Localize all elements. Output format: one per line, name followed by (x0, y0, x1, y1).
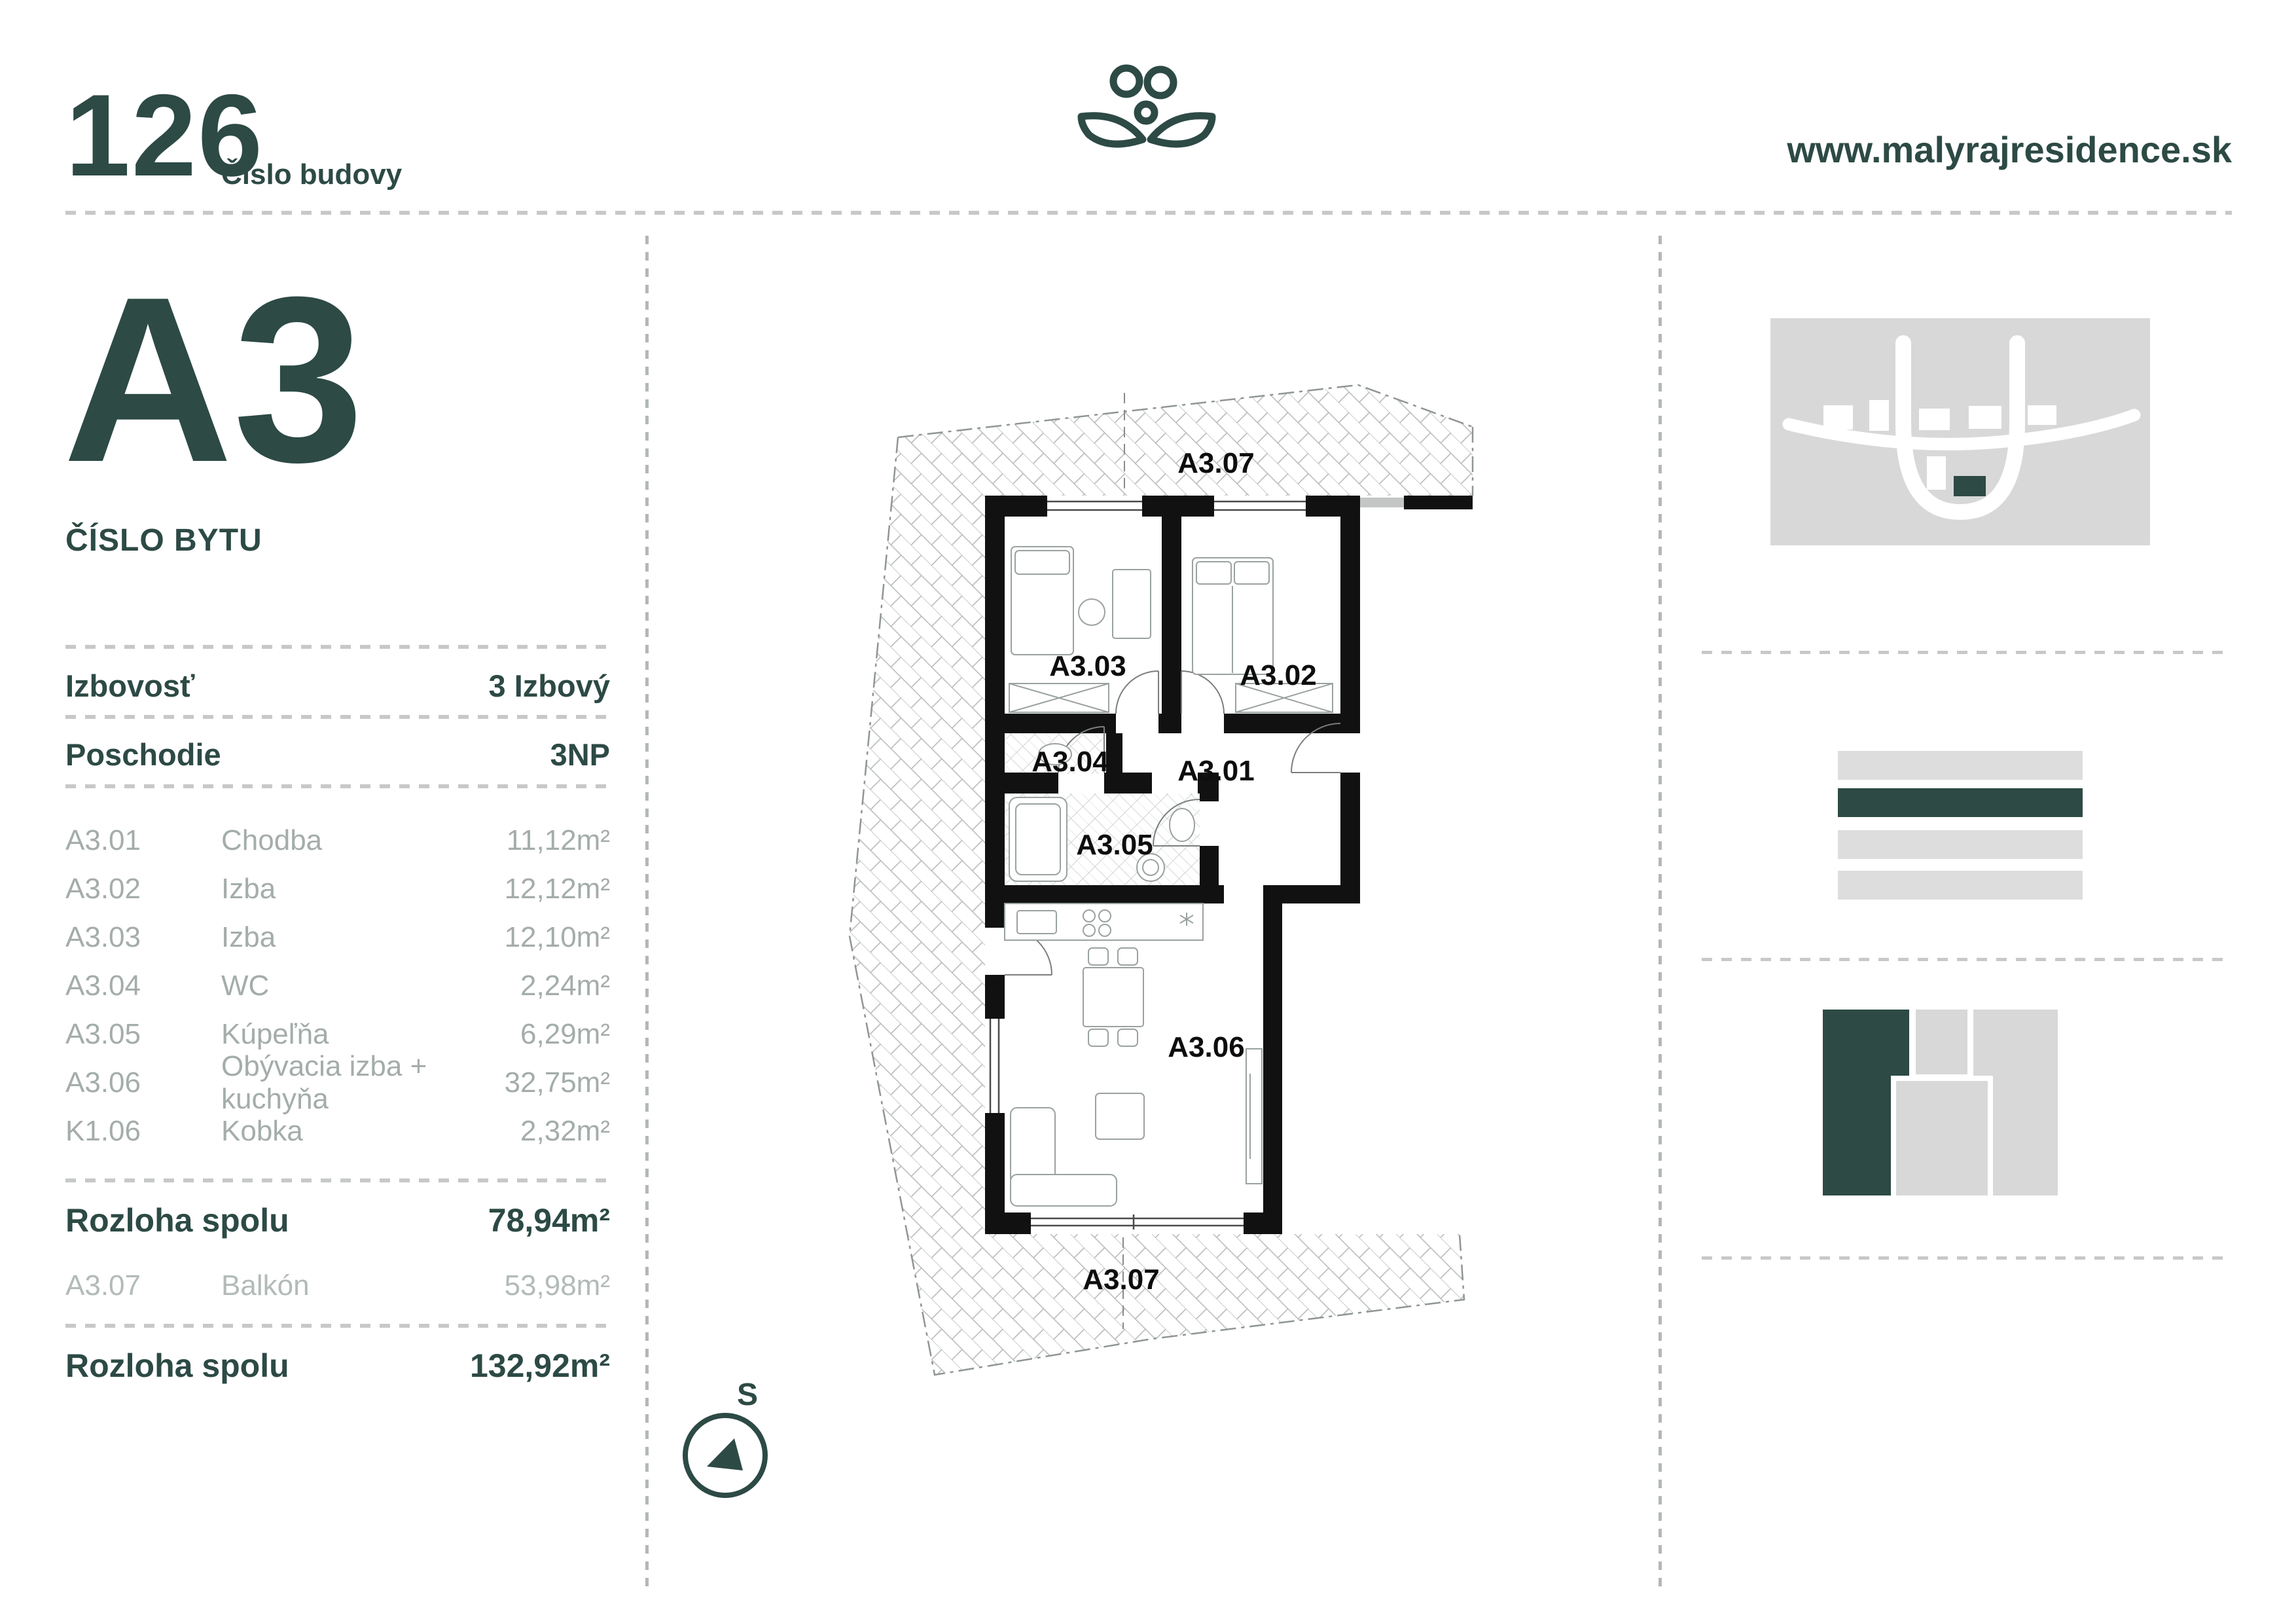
section-block (1896, 1081, 1988, 1195)
compass-arrow-icon (707, 1438, 743, 1470)
room-name: Izba (221, 873, 276, 905)
room-name: Balkón (221, 1269, 310, 1302)
divider (1702, 958, 2232, 961)
room-name: WC (221, 970, 269, 1002)
summary-value: 3 Izbový (489, 668, 610, 704)
floor-bar-3np-active (1838, 788, 2083, 817)
room-code: A3.04 (65, 970, 177, 1002)
header-rule (65, 211, 2232, 215)
floor-bar-2np (1838, 830, 2083, 859)
site-building-highlight (1954, 476, 1986, 496)
room-area: 12,10m² (505, 921, 610, 954)
room-area: 2,32m² (520, 1115, 610, 1148)
total-value: 78,94m² (488, 1201, 610, 1239)
label-bath: A3.05 (1076, 829, 1153, 861)
room-code: A3.05 (65, 1018, 177, 1051)
room-code: A3.02 (65, 873, 177, 905)
floor-bar-1np (1838, 871, 2083, 900)
label-balcony-bottom: A3.07 (1083, 1264, 1159, 1296)
section-block (1916, 1010, 1967, 1074)
label-room3: A3.03 (1049, 650, 1126, 682)
floor-bar-4np (1838, 751, 2083, 780)
room-name: Kúpeľňa (221, 1018, 329, 1051)
total-overall-row: Rozloha spolu 132,92m² (65, 1338, 610, 1393)
room-code: A3.01 (65, 824, 177, 857)
total-label: Rozloha spolu (65, 1201, 289, 1239)
room-name: Chodba (221, 824, 322, 857)
room-code: A3.03 (65, 921, 177, 954)
summary-row-poschodie: Poschodie 3NP (65, 727, 610, 782)
room-row: A3.02 Izba 12,12m² (65, 866, 610, 913)
label-room2: A3.02 (1240, 659, 1316, 691)
room-name: Izba (221, 921, 276, 954)
divider (65, 1324, 610, 1328)
room-row: A3.03 Izba 12,10m² (65, 914, 610, 961)
divider (65, 1178, 610, 1182)
website-link[interactable]: www.malyrajresidence.sk (1787, 128, 2232, 171)
room-area: 53,98m² (505, 1269, 610, 1302)
brand-leaf-icon (1075, 34, 1219, 162)
compass: S (668, 1368, 838, 1565)
divider (65, 645, 610, 649)
summary-row-izbovost: Izbovosť 3 Izbový (65, 658, 610, 713)
unit-id-label: ČÍSLO BYTU (65, 522, 262, 558)
room-row: A3.01 Chodba 11,12m² (65, 817, 610, 864)
divider (65, 784, 610, 788)
room-row: K1.06 Kobka 2,32m² (65, 1108, 610, 1155)
divider (1702, 1256, 2232, 1260)
summary-label: Izbovosť (65, 668, 194, 704)
summary-value: 3NP (550, 737, 610, 773)
floorplan: A3.07 A3.03 A3.02 A3.01 A3.04 A3.05 A3.0… (838, 354, 1662, 1388)
room-code: K1.06 (65, 1115, 177, 1148)
label-hall: A3.01 (1177, 755, 1254, 787)
room-name: Obývacia izba + kuchyňa (221, 1050, 505, 1116)
total-value: 132,92m² (470, 1347, 610, 1385)
compass-direction: S (737, 1377, 758, 1412)
column-separator-left (645, 236, 649, 1594)
room-row: A3.04 WC 2,24m² (65, 962, 610, 1010)
label-balcony-top: A3.07 (1177, 447, 1254, 479)
balcony-row: A3.07 Balkón 53,98m² (65, 1262, 610, 1309)
room-area: 12,12m² (505, 873, 610, 905)
room-code: A3.06 (65, 1067, 177, 1099)
unit-id: A3 (63, 262, 364, 498)
total-interior-row: Rozloha spolu 78,94m² (65, 1193, 610, 1248)
total-label: Rozloha spolu (65, 1347, 289, 1385)
room-area: 11,12m² (507, 824, 610, 857)
label-wc: A3.04 (1031, 746, 1109, 778)
room-name: Kobka (221, 1115, 303, 1148)
room-row: A3.06 Obývacia izba + kuchyňa 32,75m² (65, 1059, 610, 1106)
room-area: 32,75m² (505, 1067, 610, 1099)
site-map (1770, 318, 2150, 545)
divider (1702, 651, 2232, 654)
room-code: A3.07 (65, 1269, 177, 1302)
room-area: 6,29m² (520, 1018, 610, 1051)
summary-label: Poschodie (65, 737, 221, 773)
divider (65, 715, 610, 719)
room-area: 2,24m² (520, 970, 610, 1002)
label-living: A3.06 (1168, 1031, 1244, 1063)
building-number-label: Číslo budovy (221, 158, 402, 191)
